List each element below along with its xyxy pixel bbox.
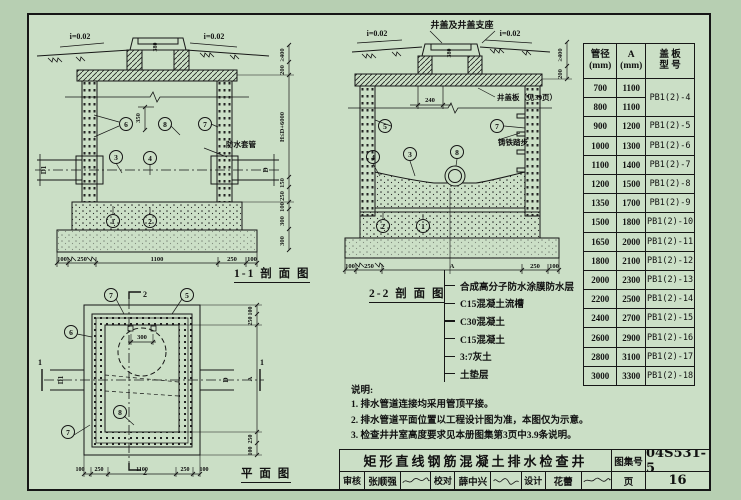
pipe-dia-cell: 900 [584, 117, 617, 136]
material-legend: 合成高分子防水涂膜防水层 C15混凝土流槽 C30混凝土 C15混凝土 3:7灰… [445, 277, 574, 383]
slope-label: i=0.02 [500, 29, 521, 38]
table-row: 22002500PB1(2)-14 [584, 290, 695, 309]
steps-label: 铸铁踏步 [498, 137, 528, 147]
plan-view-drawing: 2 2 1 1 300 7 5 6 8 7 D1 D 100 250 A 250… [32, 285, 317, 487]
soil-hatch [48, 57, 85, 62]
legend-tick [445, 338, 455, 339]
pipe-dia-cell: 1500 [584, 213, 617, 232]
pipe-dia-cell: 1200 [584, 174, 617, 193]
callout-number: 4 [148, 154, 152, 163]
checker-name: 薛中兴 [454, 472, 490, 489]
legend-item: C30混凝土 [445, 312, 574, 330]
callout-number: 3 [408, 150, 412, 159]
callout-number: 6 [124, 120, 128, 129]
dim-label: 100 [279, 202, 286, 212]
caption-section-1-1: 1-1 剖 面 图 [234, 267, 310, 283]
cover-support-label: 井盖及井盖支座 [430, 19, 493, 30]
note-item: 3. 检查井井室高度要求见本册图集第3页中3.9条说明。 [351, 429, 696, 445]
dim-label: 250 [248, 435, 254, 444]
pipe-dia-cell: 2400 [584, 309, 617, 328]
signature-scribble [491, 475, 520, 487]
pipe-dia-label: D1 [40, 165, 48, 174]
page-frame: i=0.02 i=0.02 380 6 8 7 3 4 1 2 350 防水套管… [27, 13, 711, 491]
soil-hatch [362, 52, 401, 58]
dim-label: ≥400 [279, 48, 286, 61]
table-row: 13501700PB1(2)-9 [584, 194, 695, 213]
pipe-dia-cell: 700 [584, 79, 617, 98]
callout-number: 7 [66, 428, 70, 437]
pipe-dia-cell: 2200 [584, 290, 617, 309]
dim-label: 250 [364, 263, 374, 270]
legend-tick [445, 356, 455, 357]
cover-model-cell: PB1(2)-11 [646, 232, 695, 251]
callout-number: 6 [69, 328, 73, 337]
dim-label: 100 [248, 447, 254, 456]
pipe-dia-label: D1 [57, 375, 65, 384]
callout-number: 8 [163, 120, 167, 129]
a-dim-cell: 2700 [617, 309, 646, 328]
dim-label: 300 [137, 334, 147, 341]
legend-tick [445, 303, 455, 304]
dim-label: 250 [77, 256, 87, 263]
cushion [345, 238, 559, 258]
caption-section-2-2: 2-2 剖 面 图 [369, 287, 445, 303]
a-dim-cell: 2300 [617, 270, 646, 289]
callout-number: 8 [118, 408, 122, 417]
signature-scribble [401, 475, 430, 487]
cover-model-cell: PB1(2)-13 [646, 270, 695, 289]
checker-signature [490, 472, 520, 489]
top-slab [355, 74, 542, 86]
legend-item-label: 3:7灰土 [460, 349, 492, 363]
right-wall [525, 86, 540, 216]
callout-number: 4 [371, 153, 375, 162]
dim-label: 100 [247, 256, 257, 263]
section-mark: 1 [260, 358, 264, 367]
a-dim-cell: 1100 [617, 98, 646, 117]
pipe-dia-cell: 1650 [584, 232, 617, 251]
pipe-dia-label: D [222, 377, 230, 382]
table-row: 28003100PB1(2)-17 [584, 347, 695, 366]
table-header-row: 管径(mm)A(mm)盖 板型 号 [584, 44, 695, 79]
cover-model-cell: PB1(2)-5 [646, 117, 695, 136]
section-mark: 2 [143, 290, 147, 299]
slope-label: i=0.02 [204, 32, 225, 41]
top-slab [77, 70, 237, 81]
legend-item-label: C30混凝土 [460, 314, 505, 328]
pipe-dia-cell: 1000 [584, 136, 617, 155]
cover-model-cell: PB1(2)-10 [646, 213, 695, 232]
callout-number: 3 [114, 153, 118, 162]
a-dim-cell: 1200 [617, 117, 646, 136]
dim-label: 1100 [136, 467, 148, 473]
dim-label: 250 [181, 467, 190, 473]
a-dim-cell: 1300 [617, 136, 646, 155]
pipe-dia-cell: 2600 [584, 328, 617, 347]
pipe-dia-cell: 2800 [584, 347, 617, 366]
legend-tick [445, 373, 455, 374]
table-header-cell: 盖 板型 号 [646, 44, 695, 79]
cover-model-cell: PB1(2)-15 [646, 309, 695, 328]
table-row: 9001200PB1(2)-5 [584, 117, 695, 136]
a-dim-cell: 1400 [617, 155, 646, 174]
a-dim-cell: 2100 [617, 251, 646, 270]
page-number: 16 [645, 472, 709, 489]
note-item: 1. 排水管道连接均采用管顶平接。 [351, 398, 696, 414]
dim-label: 100 [549, 263, 559, 270]
slope-label: i=0.02 [70, 32, 91, 41]
atlas-number: 04S531-5 [645, 450, 709, 471]
a-dim-cell: 2000 [617, 232, 646, 251]
table-header-cell: 管径(mm) [584, 44, 617, 79]
legend-item: 土垫层 [445, 365, 574, 383]
legend-tick [445, 285, 455, 286]
slope-label: i=0.02 [367, 29, 388, 38]
cover-model-cell: PB1(2)-16 [646, 328, 695, 347]
dim-label: H≤D+6000 [279, 112, 286, 142]
dim-label: 150 [279, 178, 286, 188]
dim-label: A [247, 376, 254, 381]
a-dim-cell: 2500 [617, 290, 646, 309]
cover-model-cell: PB1(2)-9 [646, 194, 695, 213]
caption-plan: 平 面 图 [241, 467, 291, 483]
pipe-dia-cell: 3000 [584, 366, 617, 385]
scanned-drawing-page: i=0.02 i=0.02 380 6 8 7 3 4 1 2 350 防水套管… [0, 0, 741, 500]
page-label: 页 [611, 472, 645, 489]
legend-item-label: C15混凝土流槽 [460, 296, 524, 310]
dim-label: 380 [153, 43, 159, 52]
legend-item: 合成高分子防水涂膜防水层 [445, 277, 574, 295]
table-row: 15001800PB1(2)-10 [584, 213, 695, 232]
cover-model-cell: PB1(2)-8 [646, 174, 695, 193]
a-dim-cell: 1700 [617, 194, 646, 213]
dim-label: A [450, 263, 455, 270]
note-item: 2. 排水管道平面位置以工程设计图为准，本图仅为示意。 [351, 414, 696, 430]
section-2-2-drawing: 井盖及井盖支座 i=0.02 i=0.02 380 240 井盖板（见39页） … [330, 16, 594, 284]
cover-model-cell: PB1(2)-14 [646, 290, 695, 309]
dim-label: 250 [530, 263, 540, 270]
reviewer-signature [400, 472, 430, 489]
cushion [57, 230, 257, 252]
table-row: 7001100PB1(2)-4 [584, 79, 695, 98]
designer-name: 花蕾 [545, 472, 581, 489]
pipe-dia-cell: 1100 [584, 155, 617, 174]
a-dim-cell: 3100 [617, 347, 646, 366]
legend-tick [445, 320, 455, 321]
cover-plate-table-grid: 管径(mm)A(mm)盖 板型 号7001100PB1(2)-480011009… [583, 43, 695, 386]
dim-label: 380 [447, 49, 453, 58]
table-row: 26002900PB1(2)-16 [584, 328, 695, 347]
dim-label: 100 [57, 256, 67, 263]
pipe-dia-label: D [262, 167, 270, 172]
cover-plate-label: 井盖板（见39页） [497, 92, 557, 102]
callout-number: 8 [455, 148, 459, 157]
section-1-1-drawing: i=0.02 i=0.02 380 6 8 7 3 4 1 2 350 防水套管… [32, 17, 307, 269]
callout-number: 7 [203, 120, 207, 129]
cover-model-cell: PB1(2)-18 [646, 366, 695, 385]
reviewer-label: 审核 [340, 472, 364, 489]
cover-model-cell: PB1(2)-12 [646, 251, 695, 270]
table-row: 12001500PB1(2)-8 [584, 174, 695, 193]
dim-label: 1100 [151, 256, 164, 263]
table-row: 24002700PB1(2)-15 [584, 309, 695, 328]
table-row: 11001400PB1(2)-7 [584, 155, 695, 174]
section-1-1-geometry [35, 38, 294, 267]
cover-model-cell: PB1(2)-17 [646, 347, 695, 366]
table-header-cell: A(mm) [617, 44, 646, 79]
title-block: 矩形直线钢筋混凝土排水检查井 图集号 04S531-5 审核 张顺强 校对 薛中… [339, 449, 709, 489]
dim-label: 240 [425, 97, 435, 104]
callout-number: 2 [148, 217, 152, 226]
dim-label: 300 [279, 236, 286, 246]
dim-label: 200 [557, 69, 564, 79]
designer-signature [581, 472, 611, 489]
signature-scribble [582, 475, 611, 487]
reviewer-name: 张顺强 [364, 472, 400, 489]
dim-label: 300 [279, 216, 286, 226]
legend-item-label: 合成高分子防水涂膜防水层 [460, 279, 574, 293]
a-dim-cell: 2900 [617, 328, 646, 347]
table-row: 10001300PB1(2)-6 [584, 136, 695, 155]
legend-item: 3:7灰土 [445, 347, 574, 365]
table-row: 16502000PB1(2)-11 [584, 232, 695, 251]
callout-number: 2 [381, 222, 385, 231]
plan-geometry [42, 289, 264, 478]
legend-item-label: C15混凝土 [460, 332, 505, 346]
drawing-title: 矩形直线钢筋混凝土排水检查井 [340, 450, 611, 471]
cover-model-cell: PB1(2)-4 [646, 79, 695, 117]
cover-plate-table: 管径(mm)A(mm)盖 板型 号7001100PB1(2)-480011009… [583, 43, 695, 386]
callout-number: 5 [185, 291, 189, 300]
notes-block: 说明: 1. 排水管道连接均采用管顶平接。 2. 排水管道平面位置以工程设计图为… [351, 382, 696, 445]
callout-number: 5 [383, 122, 387, 131]
a-dim-cell: 1500 [617, 174, 646, 193]
a-dim-cell: 1800 [617, 213, 646, 232]
pipe-dia-cell: 1800 [584, 251, 617, 270]
table-row: 20002300PB1(2)-13 [584, 270, 695, 289]
callout-number: 1 [421, 222, 425, 231]
sleeve-label: 防水套管 [226, 139, 256, 149]
table-row: 18002100PB1(2)-12 [584, 251, 695, 270]
dim-label: 100 [248, 307, 254, 316]
dim-label: 250 [279, 191, 286, 201]
callout-number: 1 [111, 217, 115, 226]
a-dim-cell: 3300 [617, 366, 646, 385]
checker-label: 校对 [430, 472, 454, 489]
legend-item: C15混凝土 [445, 330, 574, 348]
callout-number: 7 [109, 291, 113, 300]
callout-number: 7 [495, 122, 499, 131]
dim-label: 100 [76, 467, 85, 473]
dim-label: 250 [95, 467, 104, 473]
legend-item-label: 土垫层 [460, 367, 489, 381]
table-row: 30003300PB1(2)-18 [584, 366, 695, 385]
designer-label: 设计 [521, 472, 545, 489]
break-line [348, 103, 552, 113]
cover-model-cell: PB1(2)-7 [646, 155, 695, 174]
legend-item: C15混凝土流槽 [445, 295, 574, 313]
dim-label: 100 [200, 467, 209, 473]
dim-label: ≥400 [557, 48, 564, 61]
pipe-dia-cell: 800 [584, 98, 617, 117]
base-slab [72, 202, 242, 230]
a-dim-cell: 1100 [617, 79, 646, 98]
dim-label: 100 [345, 263, 355, 270]
section-mark: 1 [38, 358, 42, 367]
pipe-dia-cell: 2000 [584, 270, 617, 289]
dim-label: 250 [227, 256, 237, 263]
pipe-dia-cell: 1350 [584, 194, 617, 213]
cover-model-cell: PB1(2)-6 [646, 136, 695, 155]
dim-label: 250 [248, 317, 254, 326]
dim-label: 200 [279, 65, 286, 75]
dim-label: 350 [135, 113, 142, 123]
atlas-number-label: 图集号 [611, 450, 645, 471]
